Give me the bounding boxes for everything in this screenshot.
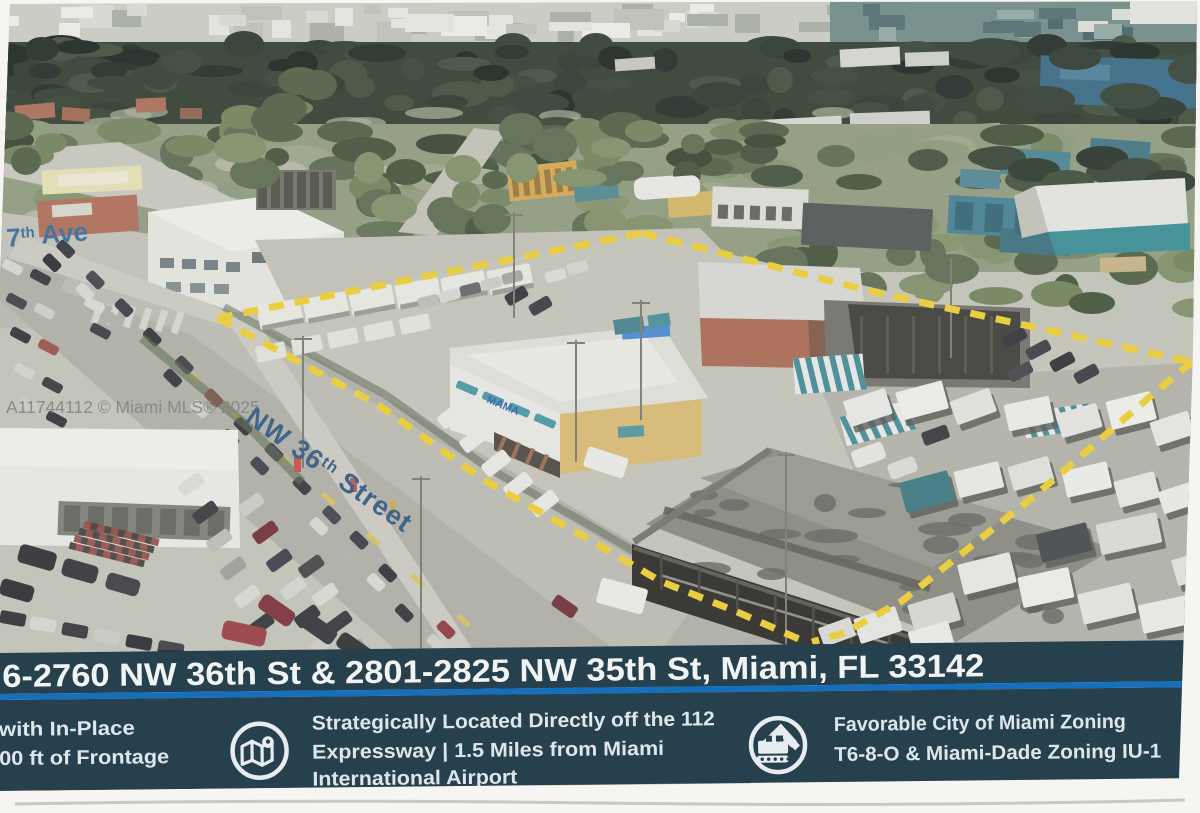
svg-text:Expressway | 1.5 Miles from Mi: Expressway | 1.5 Miles from Miami — [312, 738, 664, 764]
svg-text:Strategically Located Directly: Strategically Located Directly off the 1… — [312, 708, 715, 734]
svg-text:with In-Place: with In-Place — [0, 718, 135, 741]
svg-text:00 ft of Frontage: 00 ft of Frontage — [0, 746, 169, 770]
svg-text:T6-8-O & Miami-Dade Zoning IU-: T6-8-O & Miami-Dade Zoning IU-1 — [834, 740, 1161, 766]
svg-text:Favorable City of Miami Zoning: Favorable City of Miami Zoning — [834, 711, 1126, 736]
